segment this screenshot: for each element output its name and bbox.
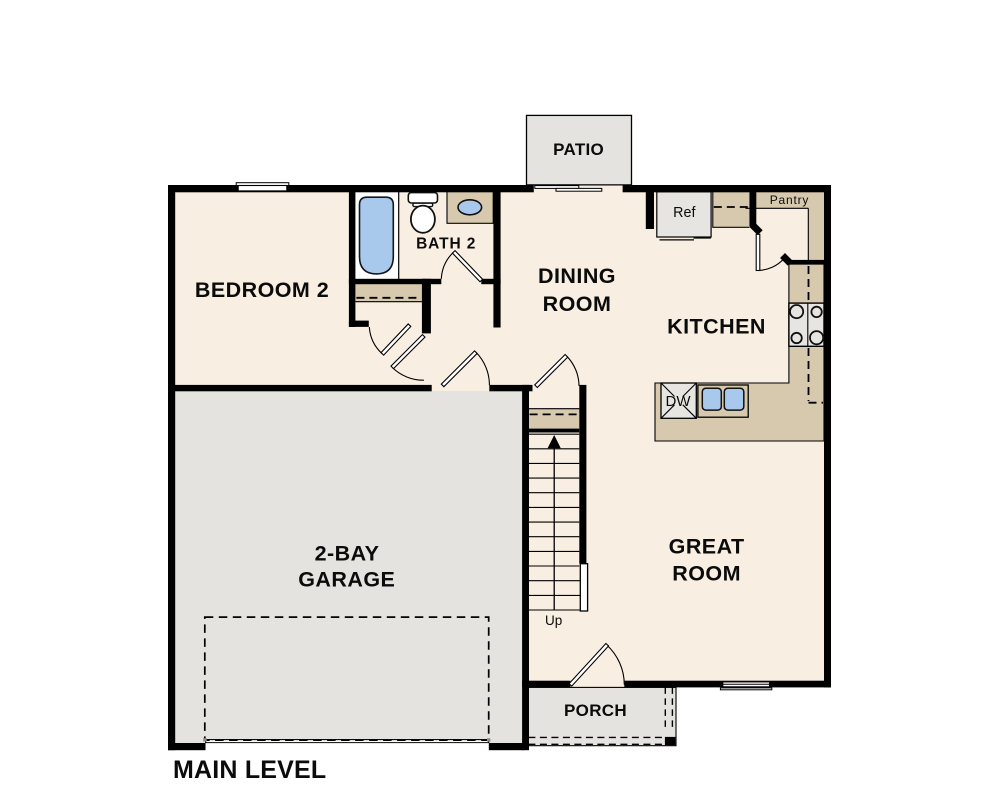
svg-text:DINING: DINING	[538, 264, 616, 288]
svg-text:ROOM: ROOM	[672, 562, 741, 586]
svg-text:Up: Up	[545, 613, 562, 628]
svg-text:Pantry: Pantry	[770, 193, 809, 207]
svg-text:MAIN LEVEL: MAIN LEVEL	[173, 756, 326, 784]
svg-text:GREAT: GREAT	[669, 535, 745, 559]
svg-text:PATIO: PATIO	[553, 140, 604, 159]
svg-text:BEDROOM 2: BEDROOM 2	[195, 278, 329, 302]
svg-text:Ref: Ref	[673, 205, 695, 221]
svg-text:BATH 2: BATH 2	[416, 236, 476, 253]
svg-text:PORCH: PORCH	[564, 701, 627, 720]
svg-text:DW: DW	[666, 393, 692, 410]
svg-text:KITCHEN: KITCHEN	[667, 315, 766, 339]
svg-text:GARAGE: GARAGE	[298, 568, 395, 592]
svg-text:ROOM: ROOM	[543, 292, 612, 316]
svg-text:2-BAY: 2-BAY	[315, 542, 380, 566]
